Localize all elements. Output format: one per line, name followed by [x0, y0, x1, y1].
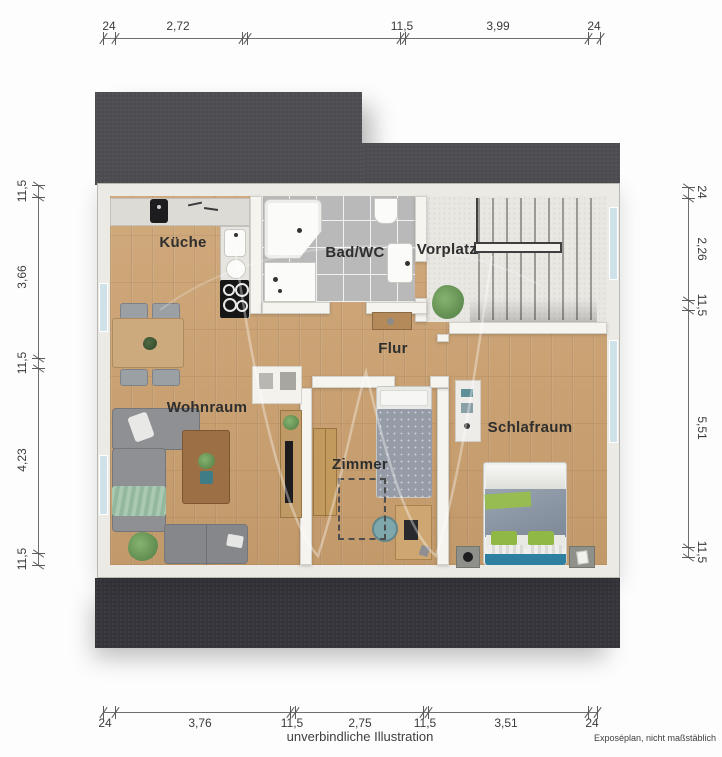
- dim-right-3: 5,51: [695, 406, 709, 450]
- table-centerpiece: [143, 337, 157, 350]
- dim-left-1: 3,66: [15, 255, 29, 299]
- dim-right-1: 2,26: [695, 227, 709, 271]
- dim-top-3: 3,99: [468, 19, 528, 34]
- sofa-pillow: [127, 411, 155, 442]
- roof-mass-top-left: [95, 92, 362, 185]
- dim-left-4: 11,5: [15, 537, 29, 581]
- loveseat-sofa: [164, 524, 248, 564]
- basin-faucet: [405, 261, 410, 266]
- dim-top-4: 24: [580, 19, 608, 34]
- loveseat-pillow: [226, 534, 244, 549]
- reduced-headroom-zone: [338, 478, 386, 540]
- dimension-tick: [682, 187, 695, 188]
- cooktop-burner: [236, 300, 248, 312]
- desk: [395, 505, 432, 560]
- window-right-schlafraum: [609, 340, 618, 443]
- dimension-tick: [247, 32, 248, 45]
- window-left-kueche: [99, 283, 108, 332]
- dim-left-3: 4,23: [15, 438, 29, 482]
- nightstand-book: [576, 550, 589, 564]
- dimension-line-top: [103, 38, 600, 39]
- cooktop-burner: [235, 283, 249, 297]
- shelf-box: [280, 372, 296, 390]
- coffee-table: [182, 430, 230, 504]
- cooktop-burner: [223, 298, 237, 312]
- bed-pillow-green: [528, 531, 554, 546]
- coffee-table-box: [200, 471, 213, 484]
- dimension-tick: [32, 197, 45, 198]
- dimension-line-left: [38, 185, 39, 565]
- wall-zimmer-schlafraum: [437, 388, 449, 565]
- nightstand-left: [456, 546, 480, 568]
- room-divider-shelf: [252, 366, 302, 404]
- wall-bad-flur-left: [262, 302, 330, 314]
- dimension-tick: [32, 565, 45, 566]
- dim-top-2: 11,5: [374, 19, 430, 34]
- shower-fitting: [278, 289, 282, 293]
- coffee-table-plant: [198, 453, 215, 469]
- bedroom-shelf: [455, 380, 481, 442]
- tv-lowboard: [280, 410, 302, 518]
- dimension-tick: [682, 198, 695, 199]
- shelf-item: [461, 403, 473, 413]
- window-left-wohnraum: [99, 455, 108, 515]
- dim-bottom-6: 24: [578, 716, 606, 731]
- dim-top-1: 2,72: [148, 19, 208, 34]
- desk-laptop: [404, 520, 418, 540]
- wall-kueche-bad: [250, 196, 262, 314]
- wall-vorplatz-schlafraum: [449, 322, 607, 334]
- dining-chair: [120, 369, 148, 386]
- dimension-tick: [682, 300, 695, 301]
- wall-schlafraum-stub: [437, 334, 449, 342]
- dining-table: [112, 318, 184, 368]
- sink-faucet: [234, 233, 238, 237]
- room-label-bad: Bad/WC: [305, 244, 405, 261]
- room-label-zimmer: Zimmer: [320, 456, 400, 473]
- dim-left-0: 11,5: [15, 169, 29, 213]
- caption-not-to-scale-note: Exposéplan, nicht maßstäblich: [556, 733, 716, 743]
- wall-flur-zimmer-stub: [430, 376, 449, 388]
- dim-right-0: 24: [695, 170, 709, 214]
- dim-right-2: 11,5: [695, 283, 709, 327]
- nightstand-right: [569, 546, 595, 568]
- dimension-tick: [682, 557, 695, 558]
- room-label-vorplatz: Vorplatz: [402, 241, 492, 258]
- dimension-tick: [682, 547, 695, 548]
- caption-illustration-note: unverbindliche Illustration: [230, 729, 490, 744]
- dim-bottom-1: 3,76: [170, 716, 230, 731]
- wardrobe-door-seam: [325, 429, 326, 517]
- dining-chair: [152, 369, 180, 386]
- dimension-line-bottom: [103, 712, 597, 713]
- dimension-tick: [32, 368, 45, 369]
- shelf-item: [464, 423, 470, 429]
- cooktop-burner: [223, 284, 235, 296]
- kitchen-cooktop: [220, 280, 249, 318]
- room-label-wohnraum: Wohnraum: [157, 399, 257, 416]
- kitchen-counter-top: [110, 198, 250, 226]
- dim-top-0: 24: [95, 19, 123, 34]
- kitchen-appliance: [150, 199, 168, 223]
- sofa-throw-blanket: [112, 486, 166, 516]
- tv-screen: [285, 441, 293, 503]
- roof-mass-bottom: [95, 578, 620, 648]
- appliance-knob: [157, 205, 161, 209]
- bed-accent-green: [485, 491, 532, 509]
- nightstand-lamp: [463, 552, 473, 562]
- dimension-tick: [682, 310, 695, 311]
- dim-bottom-0: 24: [91, 716, 119, 731]
- bed-blanket-white: [486, 465, 565, 491]
- staircase-shadow: [470, 298, 597, 322]
- dimension-tick: [32, 358, 45, 359]
- dim-left-2: 11,5: [15, 341, 29, 385]
- roof-mass-top-right: [362, 143, 620, 185]
- shelf-item: [461, 389, 473, 397]
- room-label-flur: Flur: [363, 340, 423, 357]
- kitchen-sink: [224, 229, 246, 257]
- lowboard-plant: [283, 415, 299, 430]
- shower: [264, 262, 316, 302]
- loveseat-seam: [206, 525, 207, 565]
- shower-drain: [273, 277, 278, 282]
- bed-pillow-green: [491, 531, 517, 546]
- dim-right-4: 11,5: [695, 530, 709, 574]
- bed-headboard-blue: [485, 554, 566, 565]
- shelf-box: [259, 373, 273, 389]
- flur-sideboard: [372, 312, 412, 330]
- desk-item: [419, 545, 431, 557]
- single-bed-pillow: [380, 390, 428, 406]
- dimension-tick: [32, 185, 45, 186]
- room-label-kueche: Küche: [143, 234, 223, 251]
- dimension-tick: [32, 553, 45, 554]
- double-bed: [483, 462, 567, 565]
- floorplan-canvas: 24 2,72 11,5 3,99 24 11,5 3,66 11,5 4,23…: [0, 0, 722, 757]
- window-right-vorplatz: [609, 207, 618, 280]
- toilet: [374, 198, 398, 224]
- dimension-line-right: [688, 187, 689, 557]
- room-label-schlafraum: Schlafraum: [480, 419, 580, 436]
- bathtub-faucet: [297, 228, 302, 233]
- sideboard-item: [387, 318, 394, 325]
- kitchen-plate: [226, 259, 246, 279]
